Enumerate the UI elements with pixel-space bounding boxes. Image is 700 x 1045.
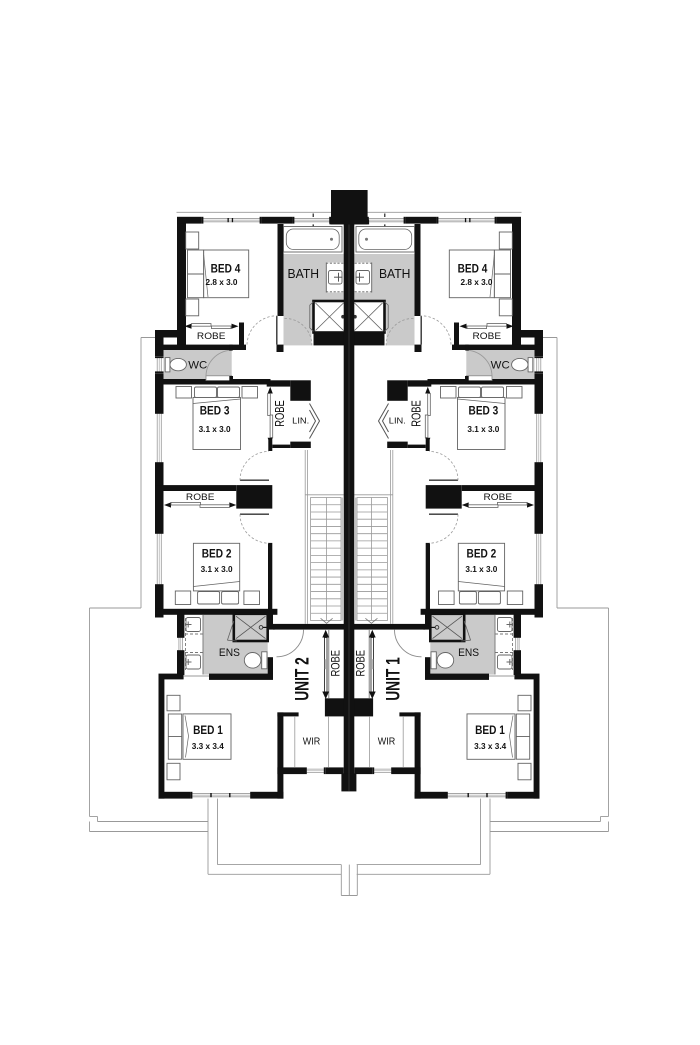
svg-text:WC: WC xyxy=(491,359,510,371)
svg-text:3.1 x 3.0: 3.1 x 3.0 xyxy=(199,425,231,434)
svg-text:UNIT 2: UNIT 2 xyxy=(293,657,314,701)
svg-text:BED 3: BED 3 xyxy=(469,404,499,418)
svg-text:BATH: BATH xyxy=(379,266,411,281)
svg-text:WIR: WIR xyxy=(303,737,321,748)
svg-text:BATH: BATH xyxy=(288,266,320,281)
svg-text:3.3 x 3.4: 3.3 x 3.4 xyxy=(192,742,224,751)
svg-text:ROBE: ROBE xyxy=(186,492,215,502)
svg-text:ROBE: ROBE xyxy=(272,400,287,427)
svg-text:BED 1: BED 1 xyxy=(193,723,223,737)
svg-text:ROBE: ROBE xyxy=(330,650,342,677)
svg-text:ROBE: ROBE xyxy=(356,650,368,677)
svg-text:ROBE: ROBE xyxy=(473,331,502,341)
svg-text:ROBE: ROBE xyxy=(197,331,226,341)
svg-text:UNIT 1: UNIT 1 xyxy=(383,657,404,701)
svg-text:3.3 x 3.4: 3.3 x 3.4 xyxy=(474,742,506,751)
svg-text:BED 3: BED 3 xyxy=(200,404,230,418)
svg-text:LIN.: LIN. xyxy=(292,416,309,426)
svg-text:2.8 x 3.0: 2.8 x 3.0 xyxy=(206,278,238,287)
svg-text:BED 2: BED 2 xyxy=(467,546,497,560)
svg-text:ENS: ENS xyxy=(219,647,240,659)
svg-text:LIN.: LIN. xyxy=(389,416,406,426)
svg-text:3.1 x 3.0: 3.1 x 3.0 xyxy=(201,565,233,574)
svg-text:BED 1: BED 1 xyxy=(475,723,505,737)
svg-text:ROBE: ROBE xyxy=(484,492,513,502)
svg-text:3.1 x 3.0: 3.1 x 3.0 xyxy=(467,425,499,434)
svg-text:3.1 x 3.0: 3.1 x 3.0 xyxy=(465,565,497,574)
svg-text:BED 2: BED 2 xyxy=(202,546,232,560)
svg-text:WIR: WIR xyxy=(378,737,396,748)
svg-text:WC: WC xyxy=(188,359,207,371)
svg-text:2.8 x 3.0: 2.8 x 3.0 xyxy=(461,278,493,287)
svg-text:ROBE: ROBE xyxy=(409,400,424,427)
svg-text:BED 4: BED 4 xyxy=(211,261,241,275)
svg-text:BED 4: BED 4 xyxy=(458,261,488,275)
svg-text:ENS: ENS xyxy=(458,647,479,659)
